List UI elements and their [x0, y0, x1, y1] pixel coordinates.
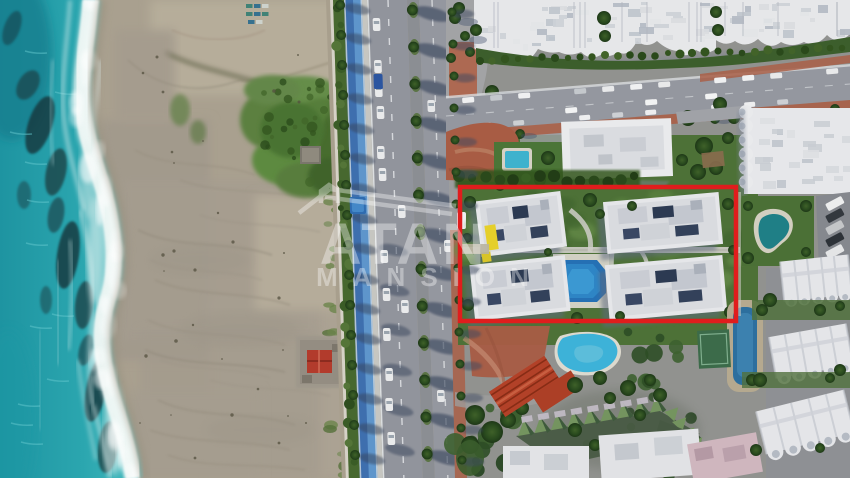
- svg-text:MANSION: MANSION: [316, 262, 544, 292]
